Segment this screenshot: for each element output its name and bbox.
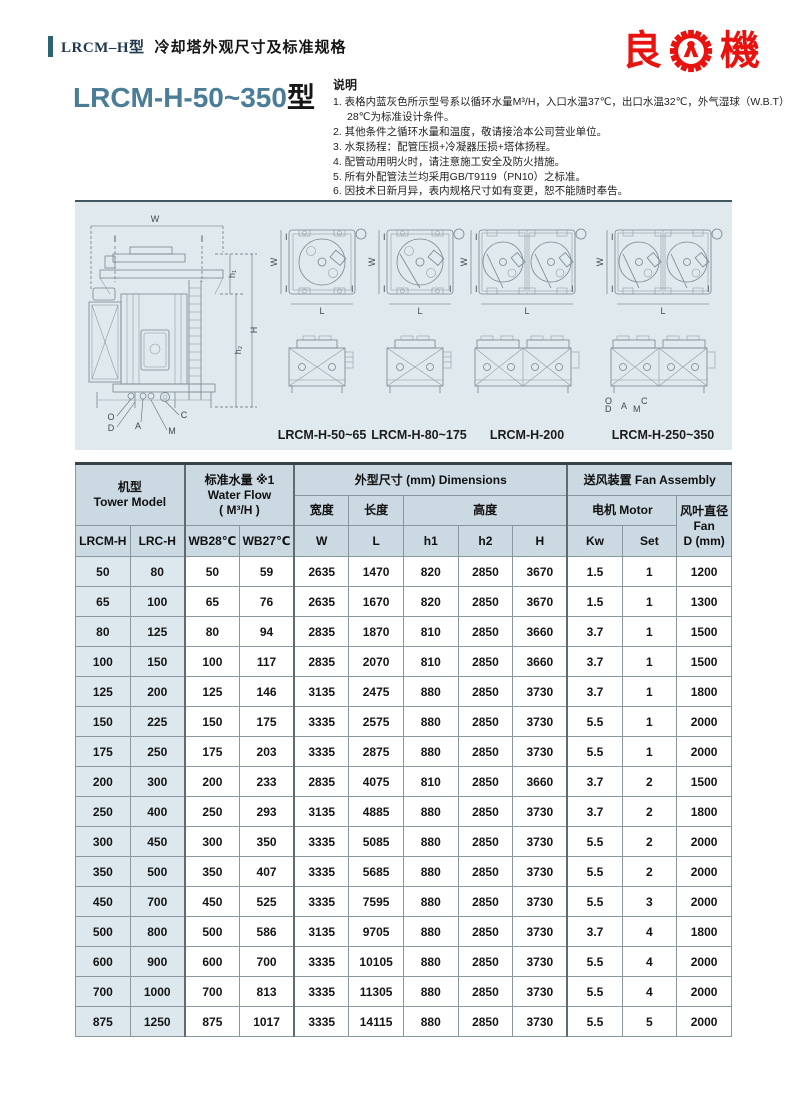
svg-text:I: I [571,284,574,294]
callout-label-a: A [135,421,141,431]
cell: 407 [239,857,294,887]
cell: 5.5 [567,827,622,857]
cell: 3.7 [567,767,622,797]
col-header: h1 [403,526,458,557]
cell: 11305 [349,977,404,1007]
cell: 1 [622,707,677,737]
cell: 880 [403,707,458,737]
table-row: 30045030035033355085880285037305.522000 [76,827,732,857]
cell: 2000 [677,887,732,917]
cell: 250 [130,737,185,767]
table-row: 15022515017533352575880285037305.512000 [76,707,732,737]
svg-text:I: I [351,284,354,294]
cell: 880 [403,797,458,827]
dim-label-h: H [249,327,259,334]
cell: 500 [130,857,185,887]
cell: 5085 [349,827,404,857]
cell: 3660 [513,617,568,647]
cell: 3.7 [567,917,622,947]
svg-text:A: A [621,401,627,411]
th-height: 高度 [403,496,567,526]
cell: 2850 [458,917,513,947]
cell: 700 [239,947,294,977]
cell: 3135 [294,677,349,707]
cell: 2850 [458,977,513,1007]
cell: 2835 [294,647,349,677]
svg-text:L: L [417,306,422,316]
cell: 100 [185,647,240,677]
cell: 2850 [458,827,513,857]
th-length: 长度 [349,496,404,526]
col-header: Kw [567,526,622,557]
cell: 3 [622,887,677,917]
cell: 100 [76,647,131,677]
cell: 875 [76,1007,131,1037]
svg-text:I: I [611,232,614,242]
cell: 4075 [349,767,404,797]
notes-block: 说明 1. 表格内蓝灰色所示型号系以循环水量M³/H，入口水温37℃，出口水温3… [333,76,791,199]
svg-text:I: I [475,284,478,294]
cell: 3730 [513,707,568,737]
cell: 600 [185,947,240,977]
cell: 200 [76,767,131,797]
cell: 3.7 [567,677,622,707]
cell: 1 [622,737,677,767]
cell: 500 [185,917,240,947]
model-series-tag: LRCM–H型 [61,36,145,57]
page-title-model: LRCM-H-50~350 [73,82,287,113]
cell: 100 [130,587,185,617]
table-row: 17525017520333352875880285037305.512000 [76,737,732,767]
cell: 76 [239,587,294,617]
top-view-250-350: W I I I L [595,229,722,316]
svg-text:W: W [269,257,279,266]
cell: 293 [239,797,294,827]
page-title: LRCM-H-50~350型 [73,76,315,116]
cell: 1 [622,647,677,677]
svg-text:D: D [605,404,612,414]
cell: 880 [403,1007,458,1037]
top-view-200: W I I I L [459,229,586,316]
cell: 2850 [458,1007,513,1037]
cell: 2 [622,857,677,887]
cell: 820 [403,587,458,617]
note-item: 4. 配管动用明火时，请注意施工安全及防火措施。 [333,155,791,170]
cell: 2850 [458,557,513,587]
table-row: 5080505926351470820285036701.511200 [76,557,732,587]
cell: 14115 [349,1007,404,1037]
table-row: 20030020023328354075810285036603.721500 [76,767,732,797]
th-fan-diameter: 风叶直径 Fan D (mm) [677,496,732,557]
cell: 175 [76,737,131,767]
cell: 600 [76,947,131,977]
svg-text:W: W [459,257,469,266]
cell: 800 [130,917,185,947]
col-header: LRC-H [130,526,185,557]
cell: 350 [239,827,294,857]
svg-text:I: I [475,232,478,242]
cell: 3.7 [567,617,622,647]
cell: 3.7 [567,797,622,827]
cell: 3335 [294,827,349,857]
front-view-200 [475,336,579,393]
cell: 150 [130,647,185,677]
note-item: 6. 因技术日新月异，表内规格尺寸如有变更，恕不能随时奉告。 [333,184,791,199]
cell: 450 [185,887,240,917]
cell: 2850 [458,857,513,887]
cell: 5.5 [567,737,622,767]
cell: 1670 [349,587,404,617]
dim-label-i: I [114,234,117,244]
th-motor: 电机 Motor [567,496,676,526]
svg-text:W: W [595,257,605,266]
note-item: 1. 表格内蓝灰色所示型号系以循环水量M³/H，入口水温37℃，出口水温32℃，… [333,95,791,125]
cell: 880 [403,917,458,947]
cell: 5.5 [567,947,622,977]
cell: 2575 [349,707,404,737]
svg-text:C: C [641,396,648,406]
cell: 5.5 [567,1007,622,1037]
cell: 117 [239,647,294,677]
callout-label-d: D [108,423,115,433]
cell: 3730 [513,977,568,1007]
front-view-250-350: O D A C M [605,336,715,414]
logo-left-char: 良 [622,31,662,71]
th-width: 宽度 [294,496,349,526]
cell: 900 [130,947,185,977]
cell: 150 [76,707,131,737]
cell: 880 [403,977,458,1007]
front-view-50-65 [289,336,353,393]
cell: 2835 [294,617,349,647]
dim-label-w: W [151,214,160,224]
cell: 2000 [677,977,732,1007]
col-header: LRCM-H [76,526,131,557]
cell: 2850 [458,887,513,917]
cell: 2000 [677,707,732,737]
col-header: W [294,526,349,557]
svg-text:L: L [319,306,324,316]
cell: 2000 [677,1007,732,1037]
spec-sheet-page: LRCM–H型 冷却塔外观尺寸及标准规格 良 [0,0,800,1113]
cell: 94 [239,617,294,647]
cell: 10105 [349,947,404,977]
page-title-suffix: 型 [287,82,315,113]
note-item: 5. 所有外配管法兰均采用GB/T9119（PN10）之标准。 [333,170,791,185]
svg-text:I: I [383,232,386,242]
cell: 5.5 [567,887,622,917]
cell: 2635 [294,557,349,587]
cell: 4 [622,917,677,947]
cell: 3135 [294,797,349,827]
th-fan-assembly: 送风装置 Fan Assembly [567,464,731,496]
cell: 880 [403,947,458,977]
cell: 2000 [677,827,732,857]
cell: 810 [403,647,458,677]
svg-text:I: I [611,284,614,294]
cell: 1500 [677,617,732,647]
cell: 1800 [677,797,732,827]
cell: 875 [185,1007,240,1037]
cell: 200 [130,677,185,707]
col-header: L [349,526,404,557]
callout-label-m: M [168,426,176,436]
cell: 3730 [513,677,568,707]
cell: 2850 [458,677,513,707]
side-view-drawing: W I I [89,214,259,436]
callout-label-c: C [181,410,188,420]
cell: 2 [622,797,677,827]
notes-title: 说明 [333,76,791,93]
svg-text:L: L [660,306,665,316]
cell: 2850 [458,947,513,977]
table-row: 87512508751017333514115880285037305.5520… [76,1007,732,1037]
cell: 525 [239,887,294,917]
cell: 3335 [294,947,349,977]
cell: 450 [130,827,185,857]
table-unit-row: LRCM-HLRC-HWB28℃WB27℃WLh1h2HKwSet [76,526,732,557]
cell: 1250 [130,1007,185,1037]
cell: 4885 [349,797,404,827]
cell: 250 [76,797,131,827]
svg-text:I: I [707,284,710,294]
cell: 3335 [294,977,349,1007]
cell: 810 [403,617,458,647]
cell: 2850 [458,647,513,677]
gear-icon [668,28,714,74]
table-row: 65100657626351670820285036701.511300 [76,587,732,617]
cell: 1870 [349,617,404,647]
cell: 225 [130,707,185,737]
top-view-50-65: W I I I L [269,229,366,316]
cell: 2 [622,827,677,857]
th-dimensions: 外型尺寸 (mm) Dimensions [294,464,567,496]
spec-table-body: 5080505926351470820285036701.51120065100… [76,557,732,1037]
cell: 2635 [294,587,349,617]
cell: 3730 [513,797,568,827]
cell: 65 [185,587,240,617]
cell: 300 [185,827,240,857]
cell: 3730 [513,887,568,917]
cell: 59 [239,557,294,587]
cell: 1470 [349,557,404,587]
cell: 1200 [677,557,732,587]
cell: 810 [403,767,458,797]
table-row: 45070045052533357595880285037305.532000 [76,887,732,917]
cell: 3660 [513,647,568,677]
cell: 1 [622,557,677,587]
cell: 175 [185,737,240,767]
cell: 1 [622,677,677,707]
col-header: Set [622,526,677,557]
cell: 350 [76,857,131,887]
col-header: WB28℃ [185,526,240,557]
table-row: 10015010011728352070810285036603.711500 [76,647,732,677]
cell: 5.5 [567,707,622,737]
drawing-caption-1: LRCM-H-50~65 [278,428,367,442]
cell: 2875 [349,737,404,767]
svg-text:I: I [285,284,288,294]
table-row: 50080050058631359705880285037303.741800 [76,917,732,947]
doc-header: LRCM–H型 冷却塔外观尺寸及标准规格 [48,36,347,57]
cell: 880 [403,827,458,857]
cell: 300 [130,767,185,797]
cell: 700 [76,977,131,1007]
col-header: H [513,526,568,557]
cell: 2850 [458,587,513,617]
top-view-80-175: W I I I L [367,229,464,316]
cell: 2 [622,767,677,797]
cell: 2000 [677,947,732,977]
spec-table-head: 机型 Tower Model 标准水量 ※1 Water Flow ( M³/H… [76,464,732,557]
cell: 1000 [130,977,185,1007]
th-tower-model: 机型 Tower Model [76,464,185,526]
cell: 2850 [458,707,513,737]
table-row: 600900600700333510105880285037305.542000 [76,947,732,977]
cell: 125 [185,677,240,707]
cell: 880 [403,857,458,887]
cell: 146 [239,677,294,707]
cell: 1 [622,617,677,647]
accent-bar [48,36,53,57]
cell: 813 [239,977,294,1007]
table-row: 35050035040733355685880285037305.522000 [76,857,732,887]
cell: 65 [76,587,131,617]
cell: 250 [185,797,240,827]
cell: 80 [130,557,185,587]
cell: 233 [239,767,294,797]
cooling-tower-drawings: W I I [75,202,732,452]
cell: 150 [185,707,240,737]
spec-table: 机型 Tower Model 标准水量 ※1 Water Flow ( M³/H… [75,462,732,1037]
cell: 1500 [677,767,732,797]
cell: 1500 [677,647,732,677]
cell: 3660 [513,767,568,797]
svg-text:W: W [367,257,377,266]
cell: 203 [239,737,294,767]
cell: 1.5 [567,587,622,617]
cell: 3670 [513,557,568,587]
cell: 1017 [239,1007,294,1037]
cell: 586 [239,917,294,947]
cell: 2850 [458,767,513,797]
drawing-caption-2: LRCM-H-80~175 [371,428,467,442]
cell: 1300 [677,587,732,617]
cell: 350 [185,857,240,887]
cell: 700 [130,887,185,917]
cell: 1800 [677,677,732,707]
cell: 820 [403,557,458,587]
cell: 50 [185,557,240,587]
logo-right-char: 機 [720,31,760,71]
cell: 400 [130,797,185,827]
cell: 125 [130,617,185,647]
cell: 2475 [349,677,404,707]
drawing-caption-3: LRCM-H-200 [490,428,564,442]
cell: 2835 [294,767,349,797]
cell: 300 [76,827,131,857]
th-water-flow: 标准水量 ※1 Water Flow ( M³/H ) [185,464,294,526]
cell: 4 [622,947,677,977]
cell: 3335 [294,887,349,917]
cell: 3335 [294,1007,349,1037]
cell: 880 [403,887,458,917]
col-header: WB27℃ [239,526,294,557]
svg-text:M: M [633,404,641,414]
cell: 3730 [513,1007,568,1037]
cell: 9705 [349,917,404,947]
table-row: 80125809428351870810285036603.711500 [76,617,732,647]
svg-text:I: I [285,232,288,242]
cell: 880 [403,737,458,767]
cell: 2070 [349,647,404,677]
note-item: 2. 其他条件之循环水量和温度，敬请接洽本公司营业单位。 [333,125,791,140]
cell: 7595 [349,887,404,917]
table-row: 12520012514631352475880285037303.711800 [76,677,732,707]
cell: 3730 [513,947,568,977]
table-row: 7001000700813333511305880285037305.54200… [76,977,732,1007]
cell: 450 [76,887,131,917]
cell: 80 [76,617,131,647]
cell: 50 [76,557,131,587]
cell: 1800 [677,917,732,947]
cell: 125 [76,677,131,707]
cell: 1 [622,587,677,617]
svg-text:I: I [383,284,386,294]
drawing-caption-4: LRCM-H-250~350 [612,428,715,442]
note-item: 3. 水泵扬程：配管压损+冷凝器压损+塔体扬程。 [333,140,791,155]
dim-label-h2: h₂ [233,345,243,354]
cell: 3335 [294,737,349,767]
cell: 80 [185,617,240,647]
cell: 175 [239,707,294,737]
cell: 1.5 [567,557,622,587]
cell: 5 [622,1007,677,1037]
cell: 3335 [294,707,349,737]
cell: 5.5 [567,977,622,1007]
cell: 3730 [513,857,568,887]
cell: 500 [76,917,131,947]
cell: 3730 [513,917,568,947]
brand-logo: 良 [622,28,760,74]
cell: 2000 [677,857,732,887]
cell: 5685 [349,857,404,887]
cell: 2850 [458,737,513,767]
cell: 200 [185,767,240,797]
svg-text:L: L [524,306,529,316]
table-row: 25040025029331354885880285037303.721800 [76,797,732,827]
doc-subtitle: 冷却塔外观尺寸及标准规格 [155,36,347,57]
technical-drawings-panel: W I I [75,200,732,450]
col-header: h2 [458,526,513,557]
cell: 2850 [458,617,513,647]
cell: 3670 [513,587,568,617]
cell: 3730 [513,737,568,767]
svg-text:I: I [449,284,452,294]
cell: 3.7 [567,647,622,677]
callout-label-o: O [107,412,114,422]
cell: 2850 [458,797,513,827]
dim-label-i: I [201,234,204,244]
dim-label-h1: h₁ [227,270,237,278]
cell: 3135 [294,917,349,947]
front-view-80-175 [387,336,451,393]
cell: 3730 [513,827,568,857]
cell: 700 [185,977,240,1007]
cell: 880 [403,677,458,707]
cell: 4 [622,977,677,1007]
cell: 3335 [294,857,349,887]
